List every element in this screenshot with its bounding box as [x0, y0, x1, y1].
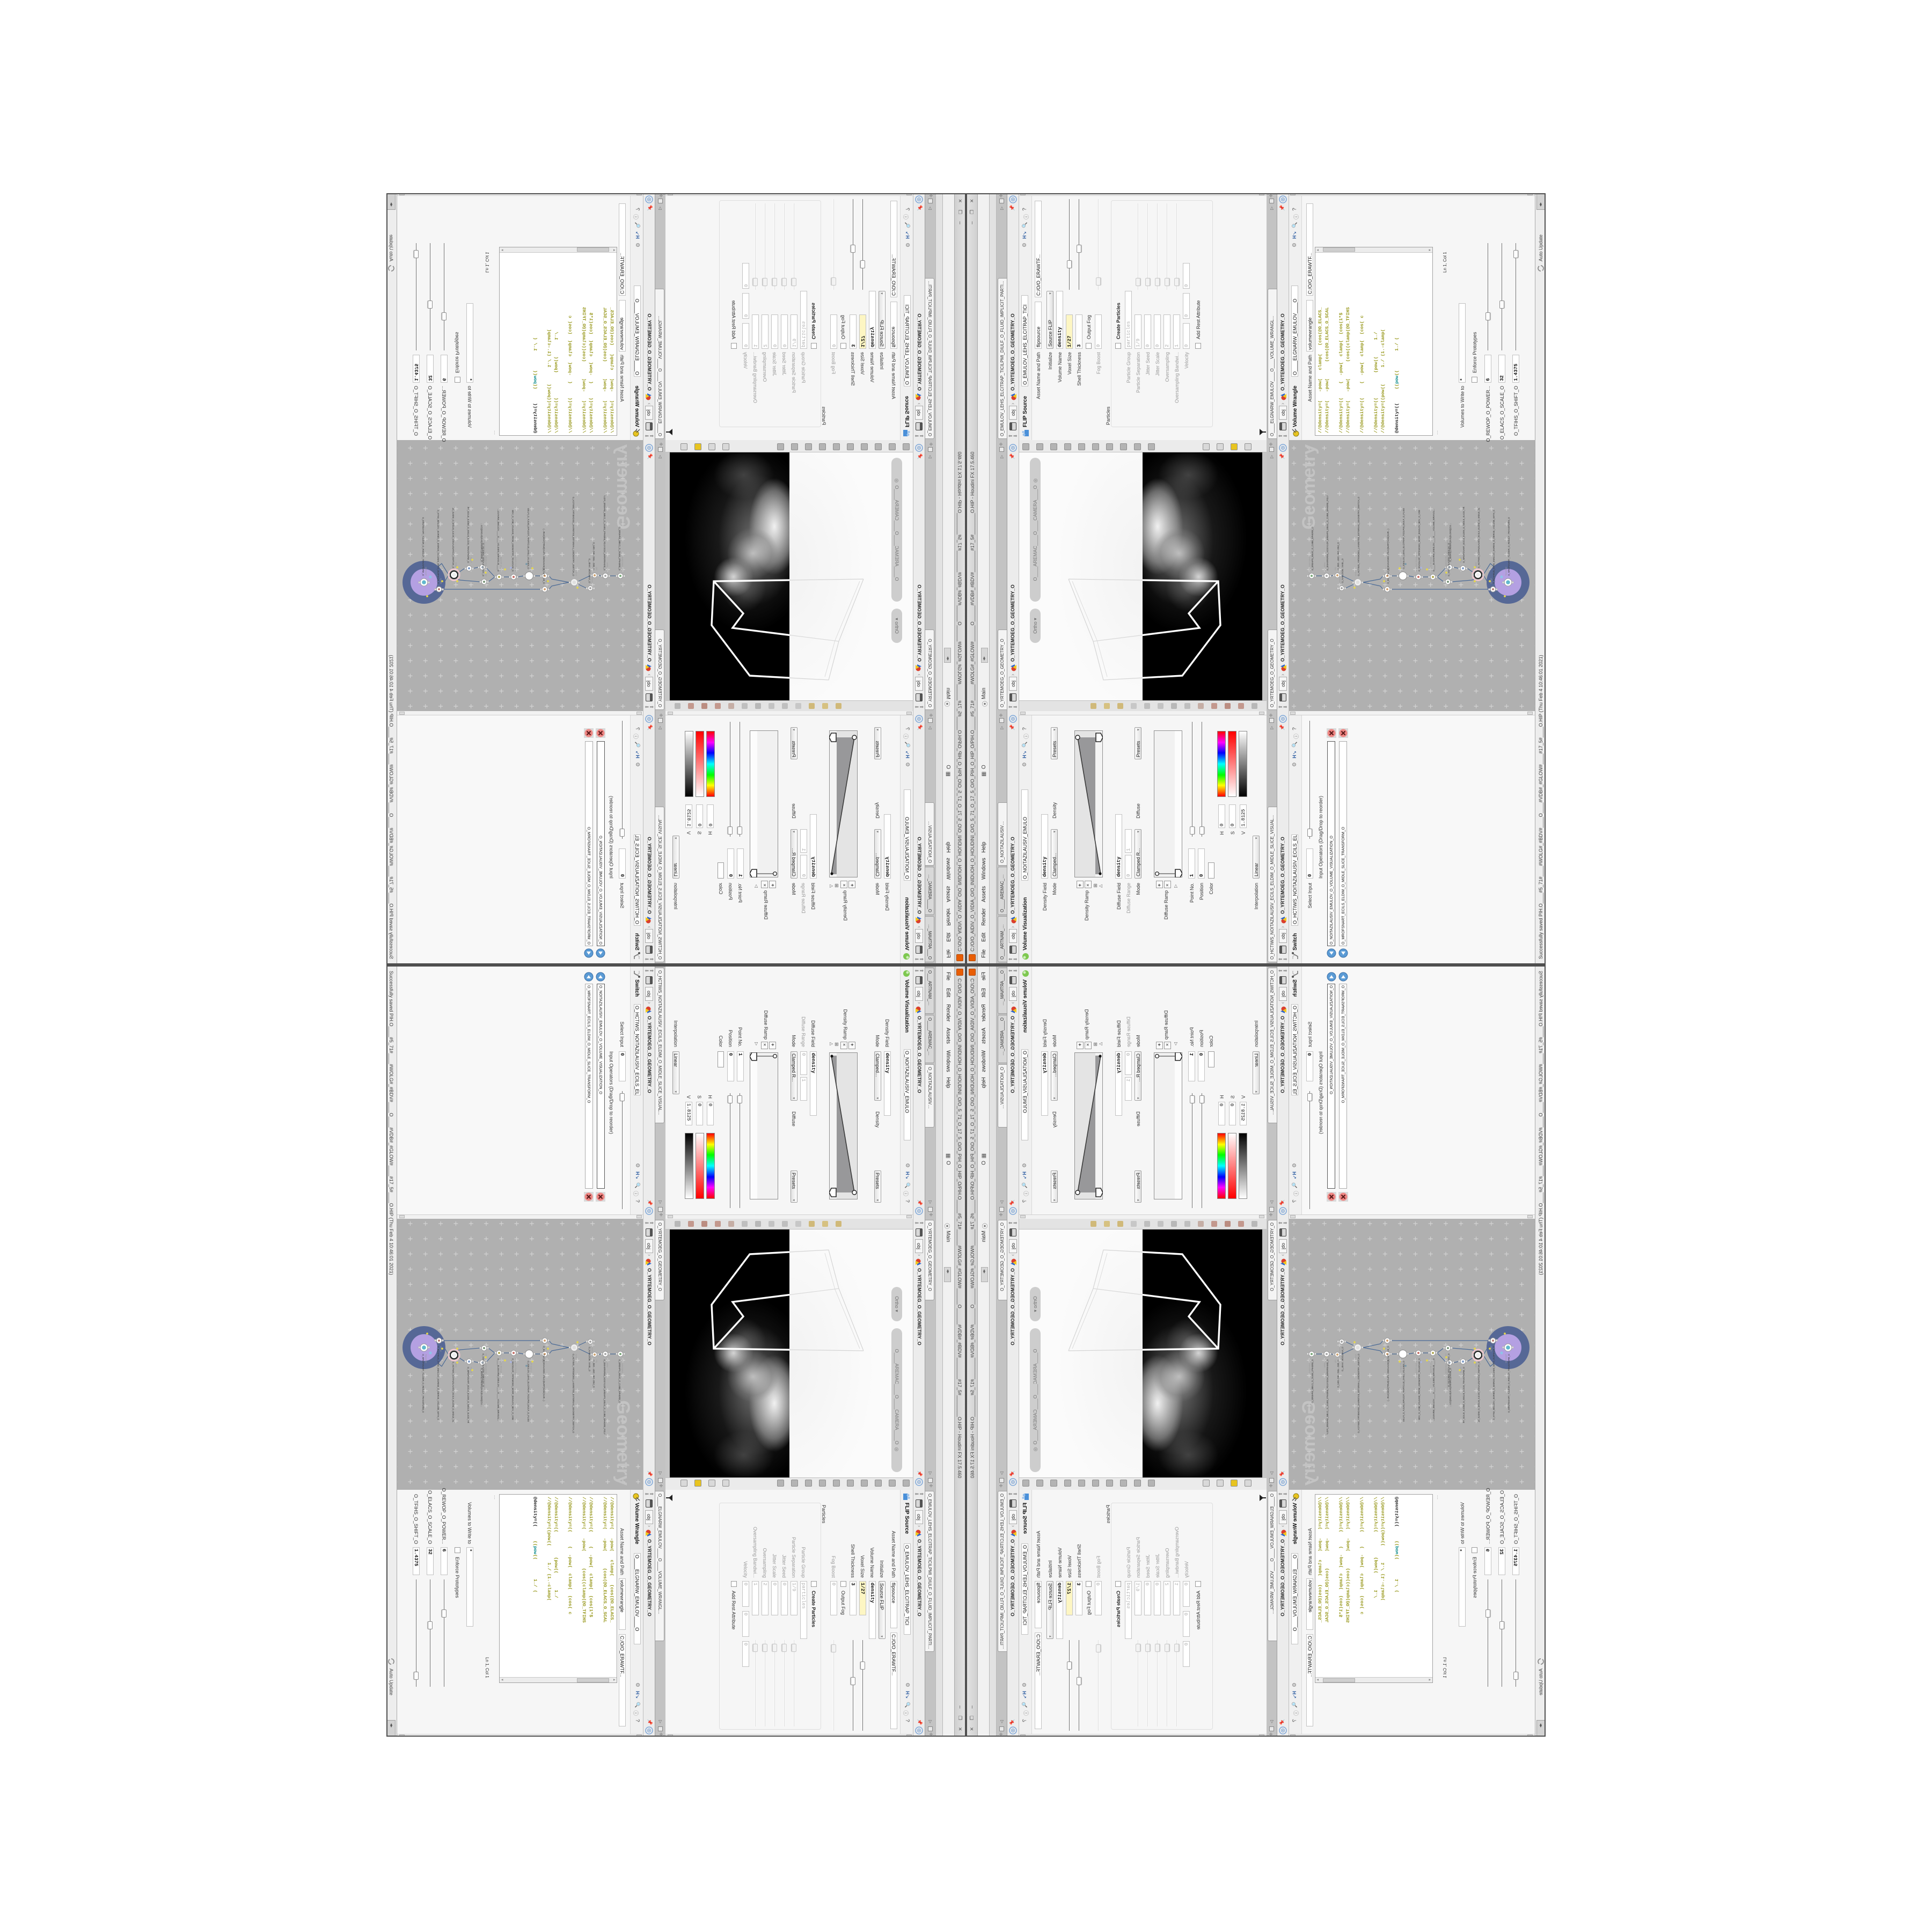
svg-text:File: File: [596, 1360, 598, 1363]
svg-text:O_NOITAZILAUSIV_EMULOV_O: O_NOITAZILAUSIV_EMULOV_O: [482, 543, 485, 576]
svg-text:O_NAELOOB...NAEL_O: O_NAELOOB...NAEL_O: [588, 1347, 591, 1372]
svg-text:O_NAELOOB...NAEL_O: O_NAELOOB...NAEL_O: [1341, 1347, 1344, 1372]
svg-text:O_EMARFERIW_NOGYLOP_EREHPS_EBU: O_EMARFERIW_NOGYLOP_EREHPS_EBUC_O_CUBE_S…: [603, 495, 606, 570]
svg-text:Transform: Transform: [425, 567, 427, 576]
svg-text:O_MROFSNART_ECILS_ELDIM_O_MIDL: O_MROFSNART_ECILS_ELDIM_O_MIDLE_SLICE_TR: [467, 507, 470, 563]
svg-text:O_EMULOV_LEHS_ELCITRAP_TICILPM: O_EMULOV_LEHS_ELCITRAP_TICILPMI_DIULF_O_…: [527, 508, 530, 569]
svg-text:Transform: Transform: [470, 554, 472, 563]
svg-text:Clip: Clip: [546, 567, 548, 570]
svg-text:O_EGAUGED...PILC(BURT)NOE(SUR.: O_EGAUGED...PILC(BURT)NOE(SUR...): [1387, 1359, 1389, 1401]
svg-text:VDB from Polygons: VDB from Polygons: [515, 1358, 517, 1376]
svg-text:O_ECAFRUS_HTIW_EMULOV_EGREM_O_: O_ECAFRUS_HTIW_EMULOV_EGREM_O_MERGE_VOLU…: [437, 1346, 440, 1420]
svg-text:O_EC...PILC_O: O_EC...PILC_O: [543, 1346, 545, 1363]
svg-text:an_CubeSphere: an_CubeSphere: [621, 1359, 624, 1374]
svg-text:PolyWire: PolyWire: [606, 1359, 609, 1367]
svg-text:Clip: Clip: [546, 1359, 548, 1363]
svg-text:O_EMARFERIW_NOGYLOP_EREHPS_EBU: O_EMARFERIW_NOGYLOP_EREHPS_EBUC_O_CUBE_S…: [1326, 1359, 1329, 1435]
svg-text:O_MROFSNART_ECILS_ELDIM_O_MIDL: O_MROFSNART_ECILS_ELDIM_O_MIDLE_SLICE_TR: [1462, 507, 1465, 563]
svg-text:O_JBO...LBO_JBO..OBJ_O: O_JBO...LBO_JBO..OBJ_O: [1337, 1360, 1340, 1388]
svg-text:Volume Wrangle: Volume Wrangle: [500, 557, 502, 572]
svg-text:O_HCTIWS_YRTEMOEG_LANRETXE_EXT: O_HCTIWS_YRTEMOEG_LANRETXE_EXTERNAL_GEOM…: [572, 1354, 575, 1434]
svg-text:O_EREHPS_EBUC_O_CUBE_SPHERE_O: O_EREHPS_EBUC_O_CUBE_SPHERE_O: [1311, 526, 1314, 570]
svg-text:O_SNOGLOP_YRTEMOEG_MORF_EMULOV: O_SNOGLOP_YRTEMOEG_MORF_EMULOV_BDV_O_VDB: [511, 510, 514, 572]
svg-text:O_NOITAZILAUSIV_EMULOV_O: O_NOITAZILAUSIV_EMULOV_O: [482, 1353, 485, 1387]
svg-text:O_HCTIWS_NOITAZILAUSIV_ECILS_E: O_HCTIWS_NOITAZILAUSIV_ECILS_ELDIM_O_MID…: [1477, 507, 1480, 568]
svg-text:O_EMULOV_LEHS_ELCITRAP_TICILPM: O_EMULOV_LEHS_ELCITRAP_TICILPMI_DIULF_O_…: [527, 1361, 530, 1422]
svg-text:O_MROFSNART_TLUSER_O_RESULT_TR: O_MROFSNART_TLUSER_O_RESULT_TRANSFORM_O: [422, 1354, 425, 1413]
svg-text:O_HCTIWS_NOITAZILAUSIV_ECILS_E: O_HCTIWS_NOITAZILAUSIV_ECILS_ELDIM_O_MID…: [452, 1362, 455, 1423]
svg-text:Boolean: Boolean: [591, 1347, 594, 1355]
svg-text:O_EMULOV_LEHS_ELCITRAP_TICILPM: O_EMULOV_LEHS_ELCITRAP_TICILPMI_DIULF_O_…: [1402, 1361, 1405, 1422]
svg-text:O_JBO...LBO_JBO..OBJ_O: O_JBO...LBO_JBO..OBJ_O: [1337, 542, 1340, 570]
svg-text:O_EMULOV_LEHS_ELCITRAP_TICILPM: O_EMULOV_LEHS_ELCITRAP_TICILPMI_DIULF_O_…: [1402, 508, 1405, 569]
svg-text:O_NAELOOB...NAEL_O: O_NAELOOB...NAEL_O: [588, 558, 591, 583]
svg-text:O____ELGNARW_EMULOV____O____VO: O____ELGNARW_EMULOV____O____VOLUME_WRANG…: [497, 1358, 500, 1421]
svg-text:O_EMARFERIW_NOGYLOP_EREHPS_EBU: O_EMARFERIW_NOGYLOP_EREHPS_EBUC_O_CUBE_S…: [603, 1359, 606, 1435]
svg-text:O_EGAUGED...PILC(BURT)NOE(SUR.: O_EGAUGED...PILC(BURT)NOE(SUR...): [543, 1359, 545, 1401]
svg-text:O_MROFSNART_TLUSER_O_RESULT_TR: O_MROFSNART_TLUSER_O_RESULT_TRANSFORM_O: [1507, 517, 1510, 576]
svg-text:O_EREHPS_EBUC_O_CUBE_SPHERE_O: O_EREHPS_EBUC_O_CUBE_SPHERE_O: [618, 526, 621, 570]
svg-text:VDB from Polygons: VDB from Polygons: [515, 554, 517, 572]
svg-text:Boolean: Boolean: [591, 576, 594, 583]
svg-text:File: File: [596, 567, 598, 570]
svg-text:O_SNOGLOP_YRTEMOEG_MORF_EMULOV: O_SNOGLOP_YRTEMOEG_MORF_EMULOV_BDV_O_VDB: [511, 1358, 514, 1420]
svg-text:O_EC...PILC_O: O_EC...PILC_O: [1387, 567, 1389, 584]
svg-text:FLIP Source: FLIP Source: [530, 1361, 532, 1372]
svg-text:O_EGAUGED...PILC(BURT)NOE(SUR.: O_EGAUGED...PILC(BURT)NOE(SUR...): [1387, 529, 1389, 570]
svg-text:O_NOITAZILAUSIV_EMULOV_O: O_NOITAZILAUSIV_EMULOV_O: [1447, 1353, 1450, 1387]
svg-text:O_NOITAZILAUSIV_EMULOV_O: O_NOITAZILAUSIV_EMULOV_O: [1447, 543, 1450, 576]
svg-text:Switch: Switch: [575, 570, 577, 576]
svg-text:O_SNOGLOP_YRTEMOEG_MORF_EMULOV: O_SNOGLOP_YRTEMOEG_MORF_EMULOV_BDV_O_VDB: [1418, 510, 1421, 572]
svg-text:O_MROFSNART_ECILS_ELDIM_O_MIDL: O_MROFSNART_ECILS_ELDIM_O_MIDLE_SLICE_TR: [1462, 1367, 1465, 1423]
svg-text:O_HCTIWS_YRTEMOEG_LANRETXE_EXT: O_HCTIWS_YRTEMOEG_LANRETXE_EXTERNAL_GEOM…: [1357, 1354, 1360, 1434]
svg-text:O_EC...PILC_O: O_EC...PILC_O: [543, 567, 545, 584]
svg-text:O____ELGNARW_EMULOV____O____VO: O____ELGNARW_EMULOV____O____VOLUME_WRANG…: [1432, 509, 1435, 572]
svg-text:O_MROFSNART_TLUSER_O_RESULT_TR: O_MROFSNART_TLUSER_O_RESULT_TRANSFORM_O: [1507, 1354, 1510, 1413]
svg-text:O_ECAFRUS_HTIW_EMULOV_EGREM_O_: O_ECAFRUS_HTIW_EMULOV_EGREM_O_MERGE_VOLU…: [1492, 1346, 1495, 1420]
svg-text:O_EREHPS_EBUC_O_CUBE_SPHERE_O: O_EREHPS_EBUC_O_CUBE_SPHERE_O: [1311, 1359, 1314, 1403]
svg-text:O_SNOGLOP_YRTEMOEG_MORF_EMULOV: O_SNOGLOP_YRTEMOEG_MORF_EMULOV_BDV_O_VDB: [1418, 1358, 1421, 1420]
svg-text:O_EGAUGED...PILC(BURT)NOE(SUR.: O_EGAUGED...PILC(BURT)NOE(SUR...): [543, 529, 545, 570]
svg-text:O_NAELOOB...NAEL_O: O_NAELOOB...NAEL_O: [1341, 558, 1344, 583]
svg-text:Switch: Switch: [575, 1354, 577, 1360]
svg-text:FLIP Source: FLIP Source: [530, 558, 532, 569]
svg-text:O_MROFSNART_ECILS_ELDIM_O_MIDL: O_MROFSNART_ECILS_ELDIM_O_MIDLE_SLICE_TR: [467, 1367, 470, 1423]
svg-text:O_JBO...LBO_JBO..OBJ_O: O_JBO...LBO_JBO..OBJ_O: [592, 1360, 595, 1388]
svg-text:an_CubeSphere: an_CubeSphere: [621, 555, 624, 570]
svg-text:O_HCTIWS_NOITAZILAUSIV_ECILS_E: O_HCTIWS_NOITAZILAUSIV_ECILS_ELDIM_O_MID…: [1477, 1362, 1480, 1423]
svg-text:O_EMARFERIW_NOGYLOP_EREHPS_EBU: O_EMARFERIW_NOGYLOP_EREHPS_EBUC_O_CUBE_S…: [1326, 495, 1329, 570]
svg-text:O_HCTIWS_YRTEMOEG_LANRETXE_EXT: O_HCTIWS_YRTEMOEG_LANRETXE_EXTERNAL_GEOM…: [1357, 496, 1360, 576]
svg-text:O_ECAFRUS_HTIW_EMULOV_EGREM_O_: O_ECAFRUS_HTIW_EMULOV_EGREM_O_MERGE_VOLU…: [1492, 510, 1495, 584]
svg-text:O_EC...PILC_O: O_EC...PILC_O: [1387, 1346, 1389, 1363]
svg-text:O_HCTIWS_NOITAZILAUSIV_ECILS_E: O_HCTIWS_NOITAZILAUSIV_ECILS_ELDIM_O_MID…: [452, 507, 455, 568]
svg-text:PolyWire: PolyWire: [606, 562, 609, 570]
svg-text:Volume Wrangle: Volume Wrangle: [500, 1358, 502, 1373]
svg-text:O_ECAFRUS_HTIW_EMULOV_EGREM_O_: O_ECAFRUS_HTIW_EMULOV_EGREM_O_MERGE_VOLU…: [437, 510, 440, 584]
svg-text:O____ELGNARW_EMULOV____O____VO: O____ELGNARW_EMULOV____O____VOLUME_WRANG…: [1432, 1358, 1435, 1421]
svg-text:Transform: Transform: [425, 1354, 427, 1363]
svg-text:O_MROFSNART_TLUSER_O_RESULT_TR: O_MROFSNART_TLUSER_O_RESULT_TRANSFORM_O: [422, 517, 425, 576]
svg-text:Transform: Transform: [470, 1367, 472, 1376]
svg-text:O_EREHPS_EBUC_O_CUBE_SPHERE_O: O_EREHPS_EBUC_O_CUBE_SPHERE_O: [618, 1359, 621, 1403]
svg-text:O_HCTIWS_YRTEMOEG_LANRETXE_EXT: O_HCTIWS_YRTEMOEG_LANRETXE_EXTERNAL_GEOM…: [572, 496, 575, 576]
svg-text:O____ELGNARW_EMULOV____O____VO: O____ELGNARW_EMULOV____O____VOLUME_WRANG…: [497, 509, 500, 572]
svg-text:O_JBO...LBO_JBO..OBJ_O: O_JBO...LBO_JBO..OBJ_O: [592, 542, 595, 570]
